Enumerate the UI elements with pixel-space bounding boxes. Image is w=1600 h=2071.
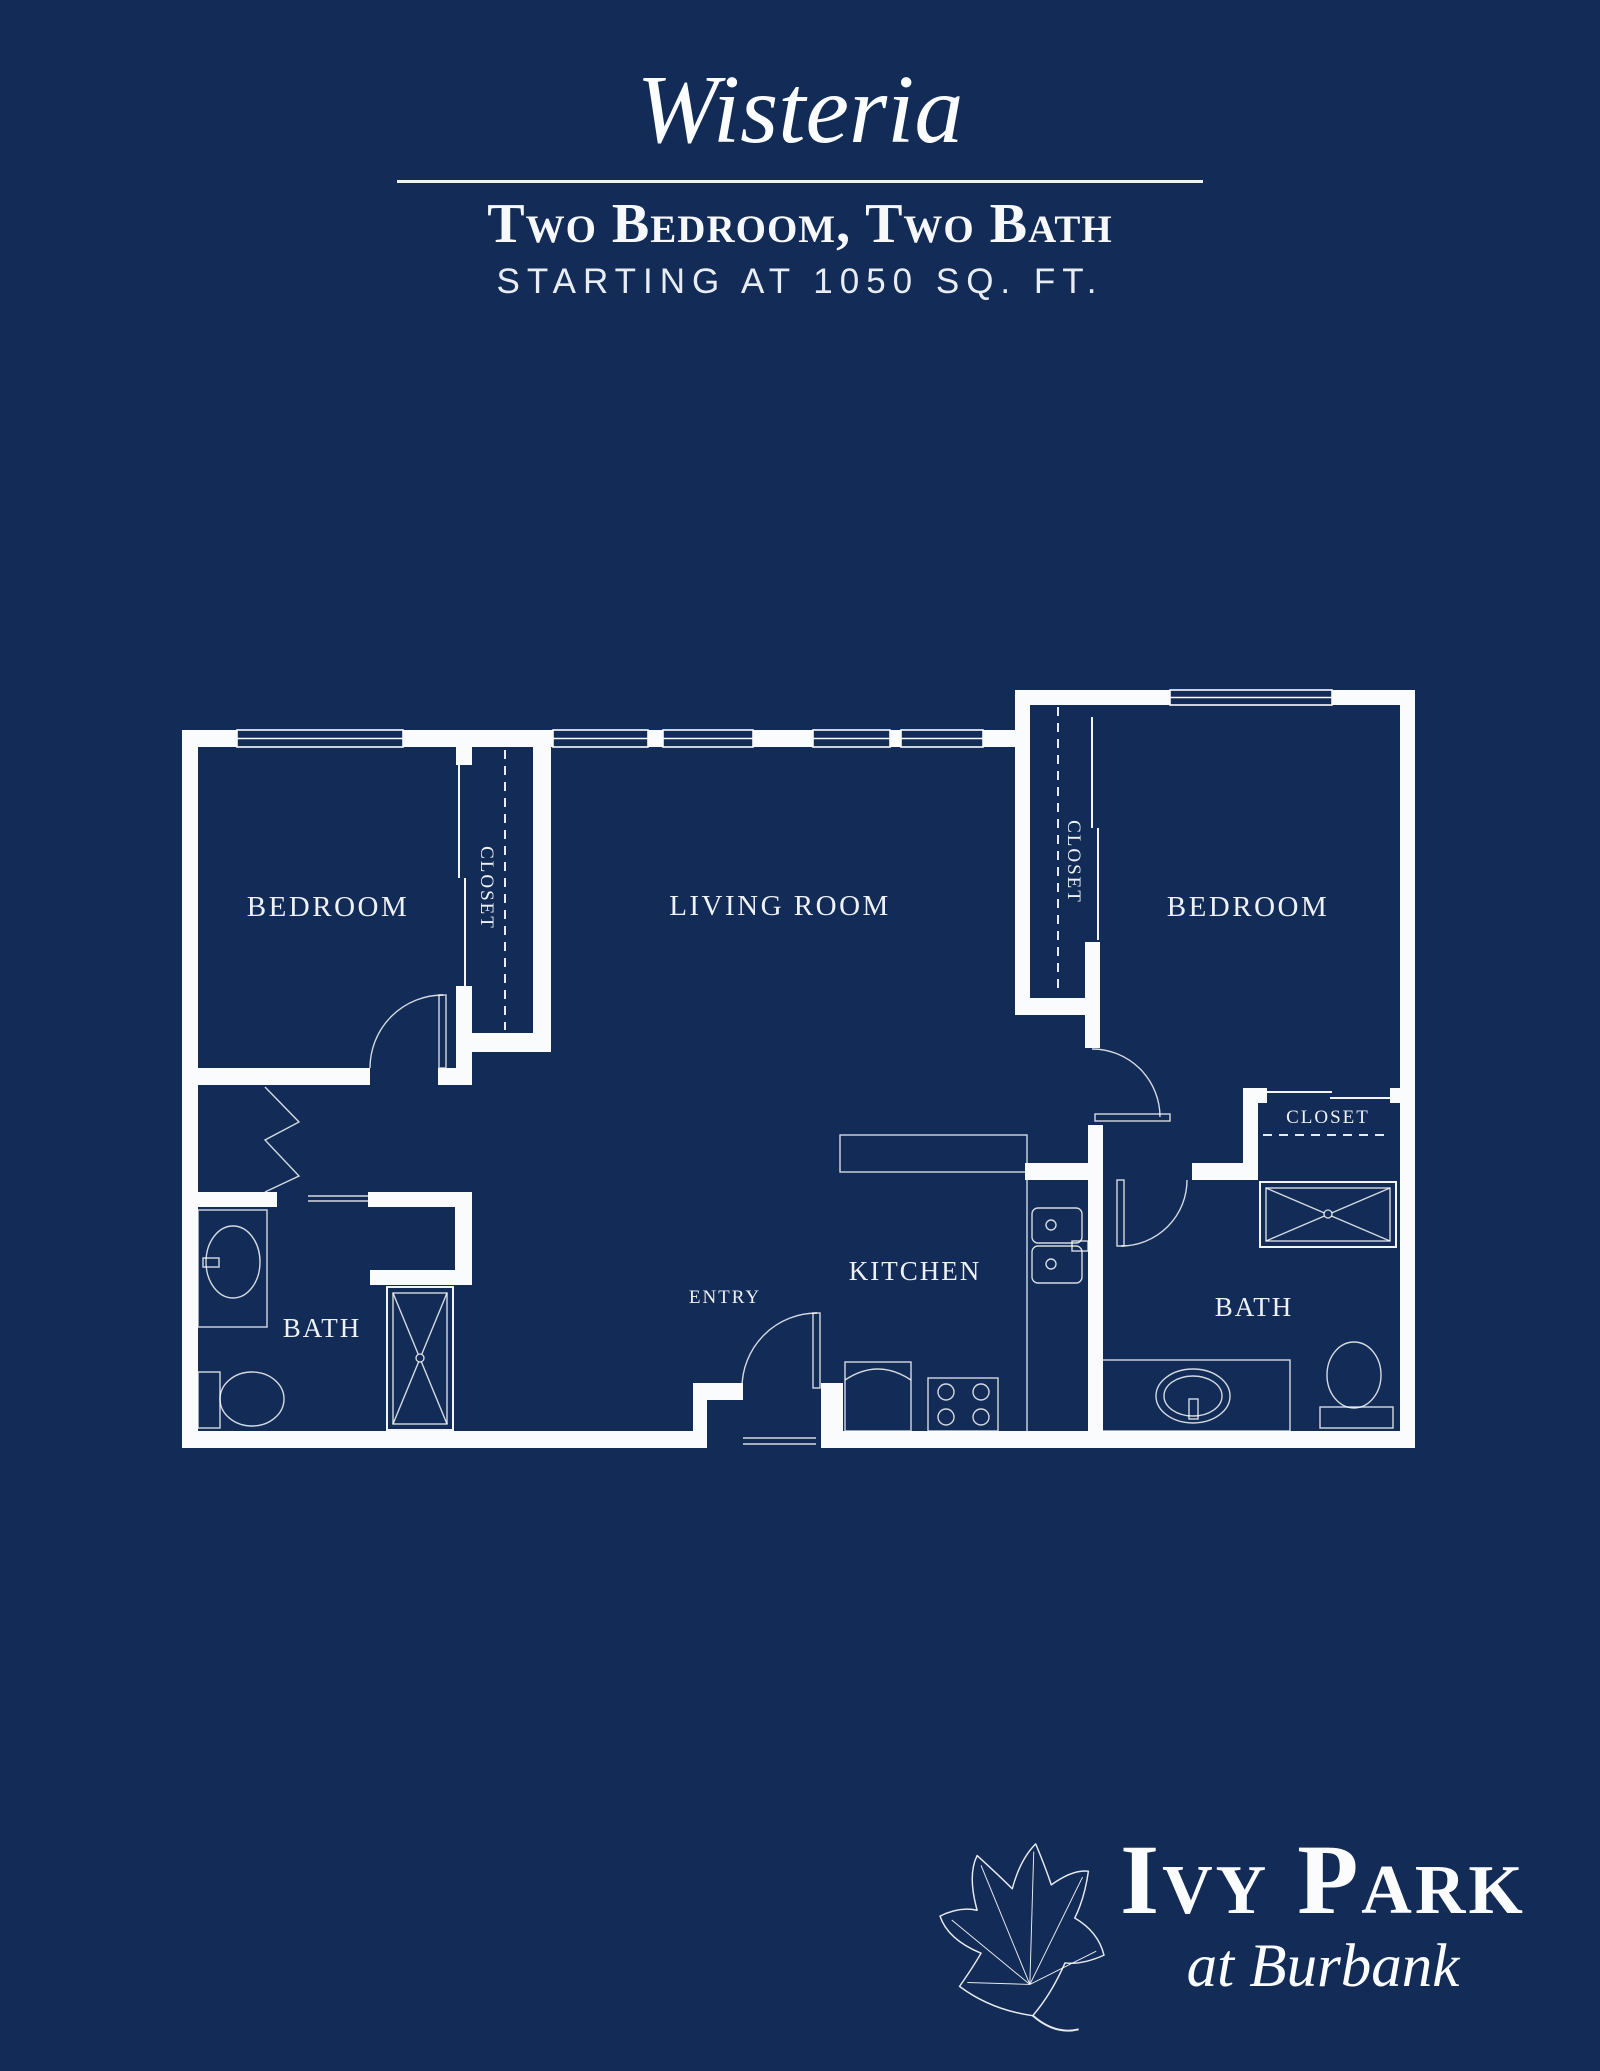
toilet-icon bbox=[1320, 1342, 1393, 1428]
ivy-leaf-icon bbox=[928, 1838, 1118, 2043]
room-label-bath-left: BATH bbox=[283, 1313, 362, 1343]
vanity bbox=[1102, 1360, 1290, 1431]
sink-icon bbox=[206, 1226, 260, 1298]
closet-left-label: CLOSET bbox=[476, 846, 497, 930]
room-label-bedroom-left: BEDROOM bbox=[247, 891, 410, 923]
closet-bath-label: CLOSET bbox=[1286, 1107, 1370, 1128]
room-label-bath-right: BATH bbox=[1215, 1292, 1294, 1322]
kitchen-peninsula bbox=[840, 1135, 1027, 1172]
sink-icon bbox=[1156, 1369, 1230, 1423]
door-swing-icon bbox=[265, 995, 1187, 1444]
room-label-entry: ENTRY bbox=[689, 1287, 761, 1308]
kitchen-sink-icon bbox=[1032, 1208, 1088, 1283]
toilet-icon bbox=[198, 1372, 220, 1428]
floor-plan: CLOSET CLOSET CLOSET bbox=[0, 0, 1600, 2071]
logo-tagline: at Burbank bbox=[1118, 1936, 1528, 1997]
fridge-icon bbox=[845, 1362, 911, 1431]
logo: Ivy Park at Burbank bbox=[900, 1830, 1540, 2050]
logo-brand: Ivy Park bbox=[1118, 1830, 1528, 1930]
closet-bath: CLOSET bbox=[1263, 1092, 1390, 1135]
flyer-page: Wisteria Two Bedroom, Two Bath STARTING … bbox=[0, 0, 1600, 2071]
walls bbox=[182, 690, 1415, 1448]
room-label-kitchen: KITCHEN bbox=[849, 1256, 981, 1286]
closet-right-label: CLOSET bbox=[1063, 820, 1084, 904]
room-label-living-room: LIVING ROOM bbox=[669, 890, 891, 922]
shower-icon bbox=[387, 1287, 453, 1430]
vanity bbox=[198, 1210, 267, 1327]
stove-icon bbox=[928, 1378, 998, 1431]
room-label-bedroom-right: BEDROOM bbox=[1167, 891, 1330, 923]
logo-text: Ivy Park at Burbank bbox=[1118, 1830, 1528, 1997]
shower-icon bbox=[1260, 1182, 1396, 1247]
